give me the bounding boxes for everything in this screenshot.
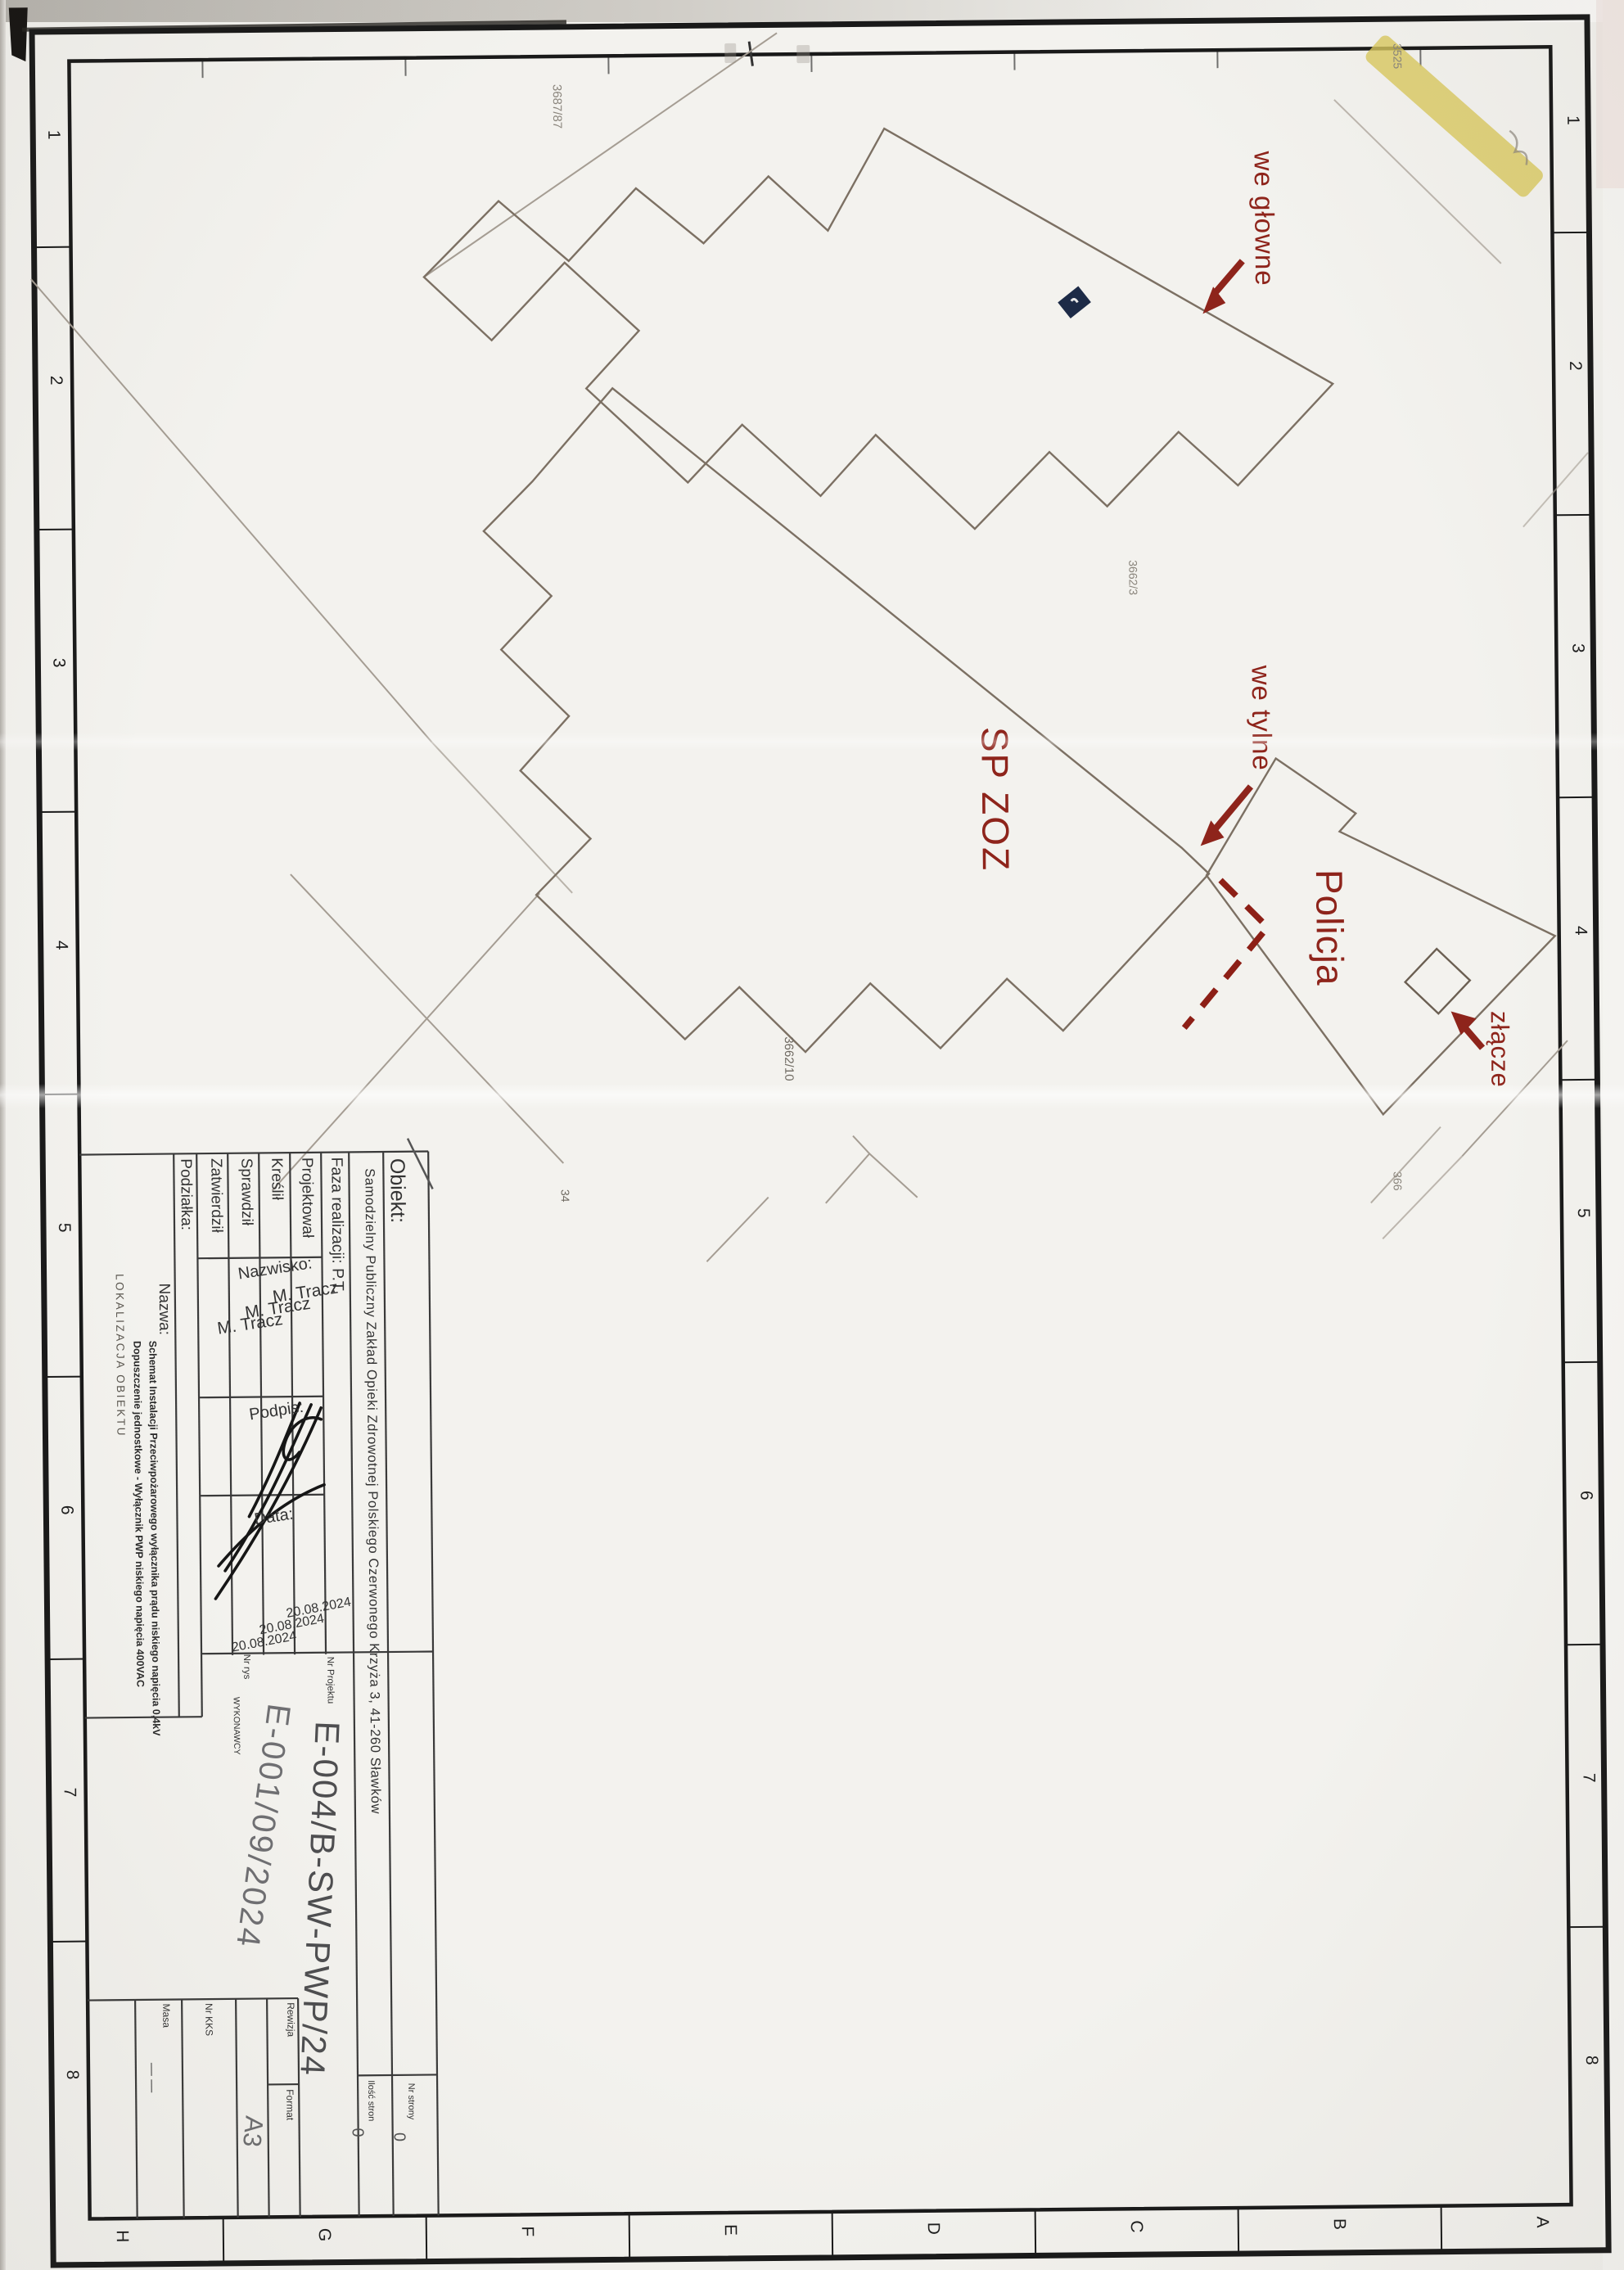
frame-zone-letter-H: H: [114, 2230, 131, 2242]
parcel-3525: 3525: [1392, 43, 1403, 69]
titleblock-ilosc-stron-value: 0: [350, 2128, 366, 2137]
titleblock-faza: Faza realizacji: P.T.: [328, 1157, 345, 1293]
frame-zone-number-right-2: 2: [1567, 361, 1584, 371]
frame-zone-number-left-7: 7: [61, 1788, 79, 1798]
arrow-main-entrance: [1202, 287, 1225, 314]
frame-zone-number-right-8: 8: [1583, 2056, 1600, 2065]
parcel-34: 34: [560, 1189, 571, 1203]
titleblock-format-value: A3: [239, 2114, 267, 2148]
frame-zone-letter-F: F: [519, 2226, 536, 2236]
titleblock-role-projektowal: Projektował: [299, 1158, 315, 1238]
building-upper: [422, 124, 1334, 535]
frame-zone-number-left-1: 1: [45, 130, 62, 140]
building-spzoz-outline: [482, 382, 1211, 1054]
frame-zone-number-left-4: 4: [53, 941, 70, 950]
label-junction: złącze: [1487, 1011, 1513, 1088]
scan-fold-band: [0, 733, 1624, 751]
titleblock-nazwa-label: Nazwa:: [156, 1284, 173, 1336]
titleblock-role-zatwierdzil: Zatwierdził: [208, 1158, 224, 1233]
frame-zone-number-left-2: 2: [47, 376, 65, 386]
titleblock-nr-kks-label: Nr KKS: [204, 2003, 214, 2036]
titleblock-role-sprawdzil: Sprawdził: [238, 1158, 255, 1226]
titleblock-masa-value: — —: [145, 2063, 158, 2093]
frame-zone-number-right-4: 4: [1572, 926, 1590, 936]
drawing-sheet: we głowne we tylne złącze SP ZOZ Policja…: [0, 0, 1624, 2270]
titleblock-obiekt-label: Obiekt:: [386, 1158, 408, 1223]
titleblock-format-label: Format: [285, 2089, 295, 2120]
frame-zone-number-left-5: 5: [56, 1223, 73, 1233]
parcel-366: 366: [1392, 1171, 1403, 1190]
titleblock-role-kreslil: Kreślił: [268, 1158, 284, 1200]
parcel-3662-3: 3662/3: [1127, 560, 1139, 595]
frame-zone-letter-D: D: [925, 2223, 942, 2235]
titleblock-nr-rys-label: Nr rys: [241, 1654, 251, 1680]
parcel-3662-10: 3662/10: [783, 1036, 796, 1081]
scan-fold-band: [0, 1084, 1624, 1108]
titleblock-rewizja-label: Rewizja: [286, 2002, 295, 2037]
frame-zone-number-right-6: 6: [1577, 1491, 1595, 1501]
frame-zone-number-left-6: 6: [58, 1505, 75, 1515]
frame-zone-letter-E: E: [722, 2224, 739, 2236]
frame-zone-letter-A: A: [1534, 2216, 1551, 2227]
titleblock-podzialka-label: Podziałka:: [178, 1158, 194, 1230]
titleblock-masa-label: Masa: [161, 2004, 171, 2028]
street-lines: [29, 25, 1595, 1268]
titleblock-nr-strony-label: Nr strony: [406, 2083, 415, 2120]
label-rear-entrance: we tylne: [1248, 666, 1276, 771]
frame-zone-number-right-1: 1: [1564, 115, 1581, 125]
arrow-junction: [1451, 1011, 1477, 1035]
titleblock-nr-strony-value: 0: [391, 2132, 408, 2141]
frame-zone-number-left-3: 3: [50, 658, 67, 668]
titleblock-lokalizacja: LOKALIZACJA OBIEKTU: [114, 1274, 126, 1437]
navy-marker: [1058, 287, 1091, 318]
titleblock-nr-projektu-label: Nr Projektu: [325, 1657, 335, 1704]
scanned-drawing-page: we głowne we tylne złącze SP ZOZ Policja…: [0, 0, 1624, 2270]
frame-zone-number-left-8: 8: [64, 2070, 81, 2080]
parcel-3687-87: 3687/87: [551, 84, 564, 129]
frame-zone-number-right-3: 3: [1569, 643, 1586, 653]
handmade-tick: [749, 42, 752, 66]
frame-zone-number-right-5: 5: [1575, 1208, 1592, 1218]
building-outlines: [422, 122, 1557, 1123]
faint-mark: [724, 43, 736, 63]
frame: [32, 17, 1608, 2265]
frame-zone-letter-B: B: [1331, 2218, 1348, 2230]
titleblock-nr-rys-wykonawcy-label: WYKONAWCY: [232, 1697, 241, 1755]
frame-zone-letter-G: G: [316, 2228, 333, 2242]
faint-mark: [796, 45, 810, 63]
titleblock-nazwa-line2: Dopuszczenie jednostkowe - Wyłącznik PWP…: [132, 1341, 146, 1687]
frame-zone-letter-C: C: [1128, 2220, 1145, 2232]
label-main-entrance: we głowne: [1250, 151, 1279, 286]
junction-box-square: [1405, 949, 1470, 1013]
scan-black-wedge: [9, 7, 29, 61]
frame-zone-number-right-7: 7: [1581, 1773, 1598, 1783]
titleblock-ilosc-stron-label: Ilość stron: [366, 2080, 375, 2121]
label-building-policja: Policja: [1310, 869, 1349, 986]
